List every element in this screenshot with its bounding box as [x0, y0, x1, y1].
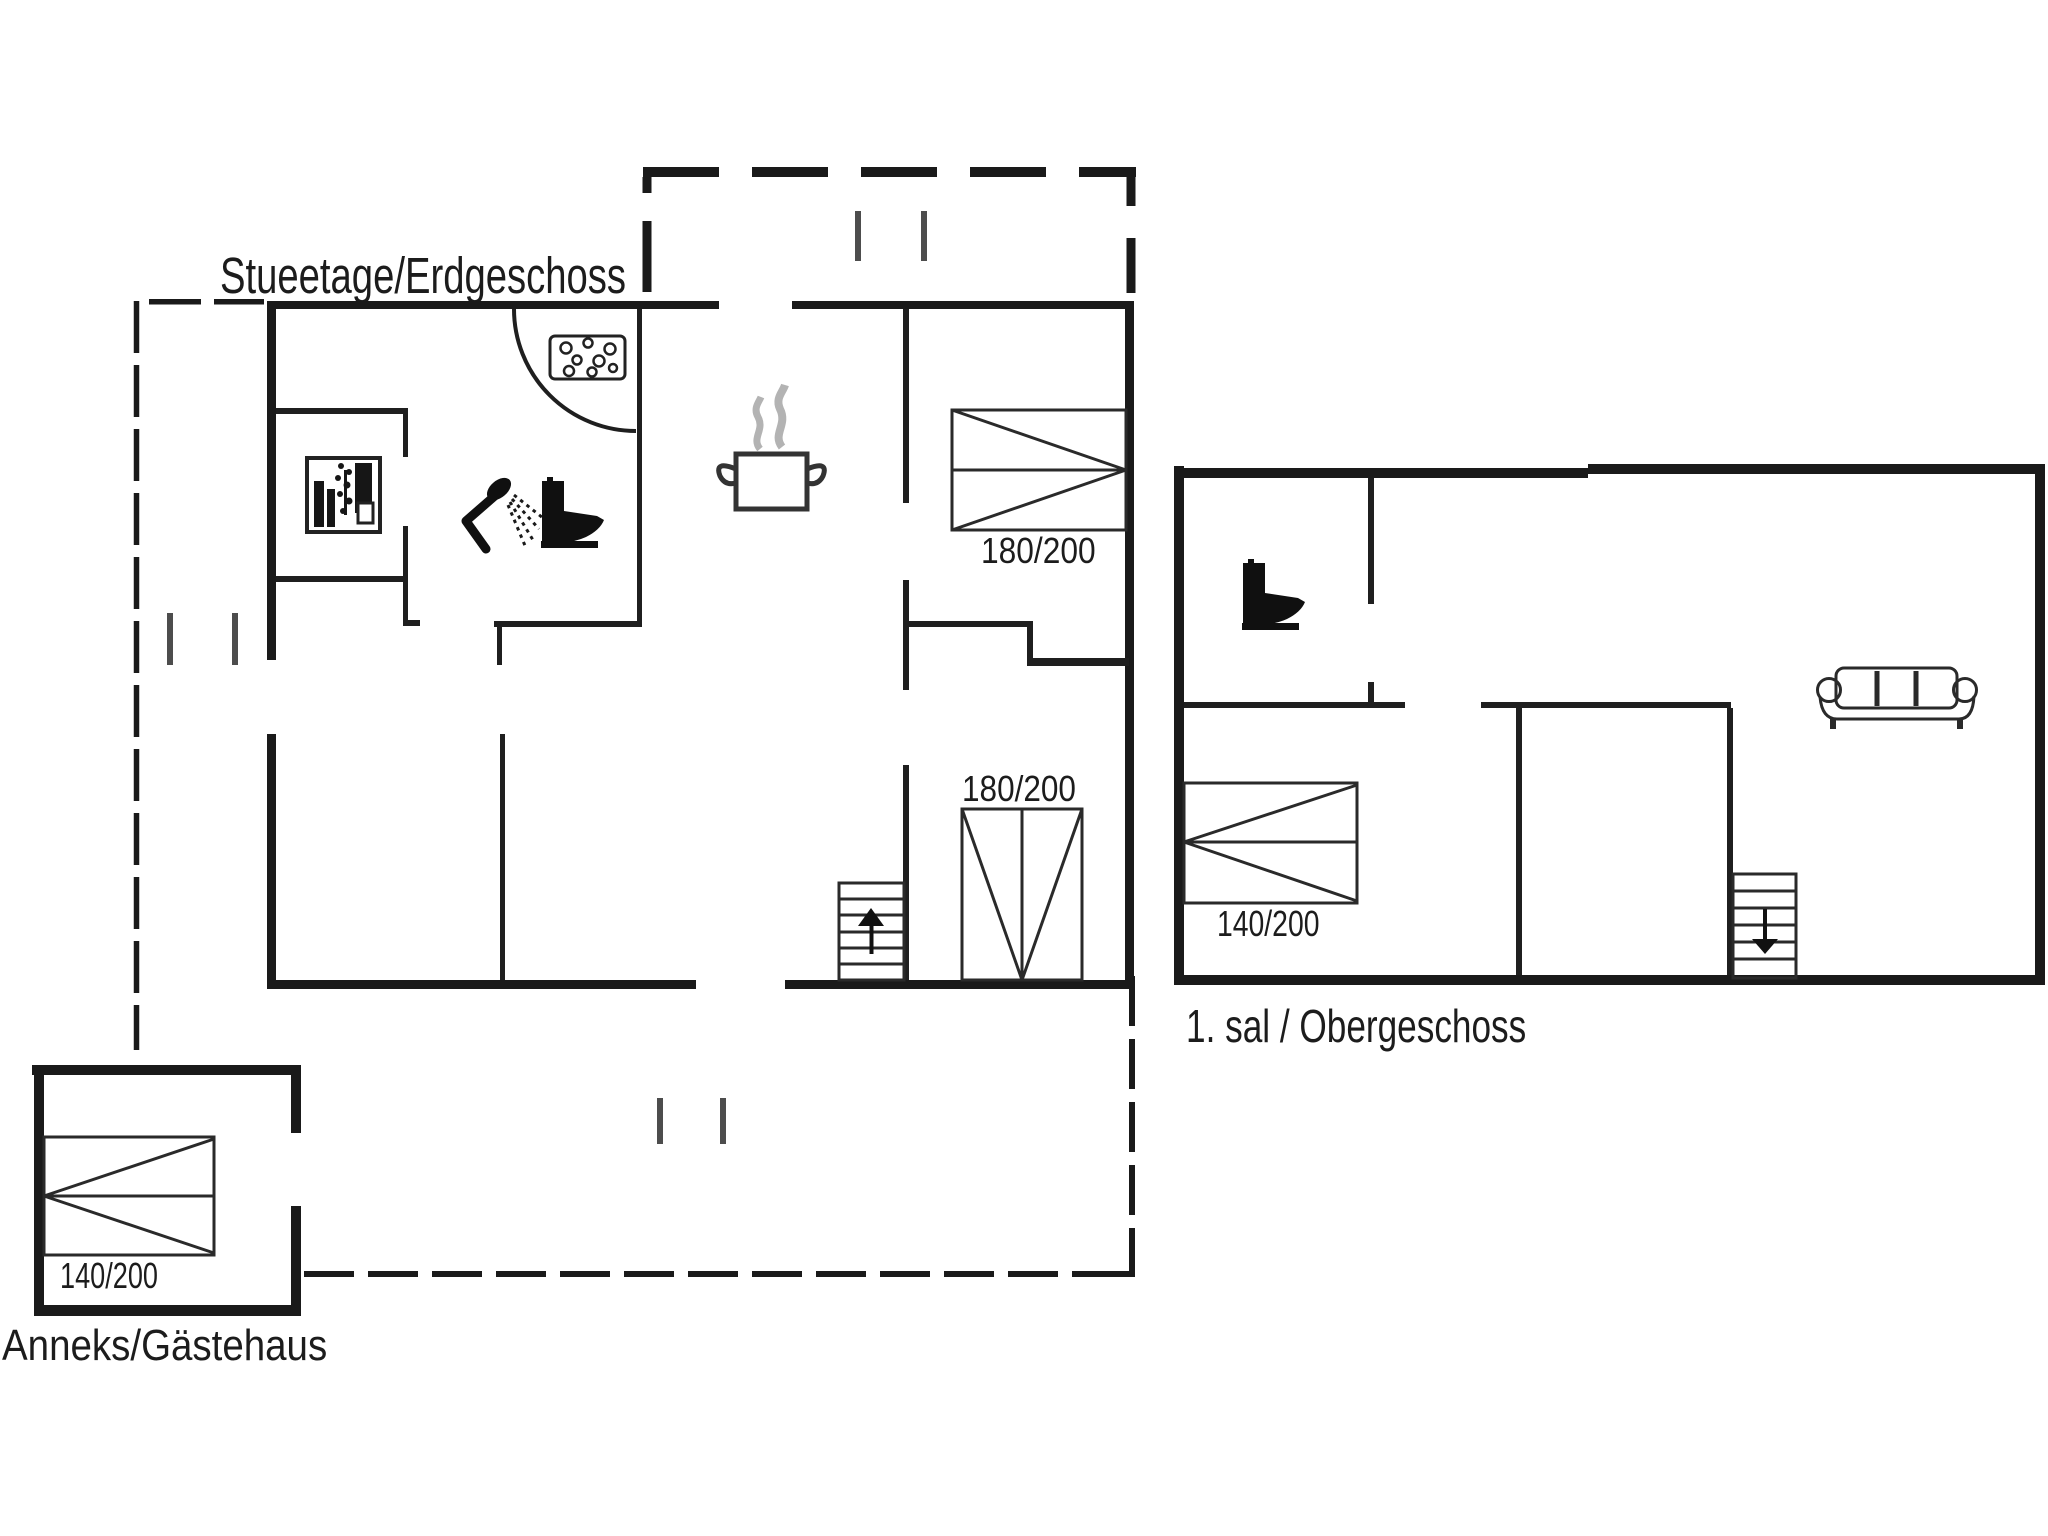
svg-text:140/200: 140/200	[60, 1255, 158, 1296]
svg-text:180/200: 180/200	[962, 769, 1076, 809]
svg-text:Stueetage/Erdgeschoss: Stueetage/Erdgeschoss	[220, 247, 626, 305]
svg-text:1. sal / Obergeschoss: 1. sal / Obergeschoss	[1186, 1000, 1526, 1052]
svg-text:Anneks/Gästehaus: Anneks/Gästehaus	[2, 1321, 327, 1370]
svg-text:180/200: 180/200	[981, 531, 1096, 571]
svg-text:140/200: 140/200	[1217, 904, 1319, 944]
